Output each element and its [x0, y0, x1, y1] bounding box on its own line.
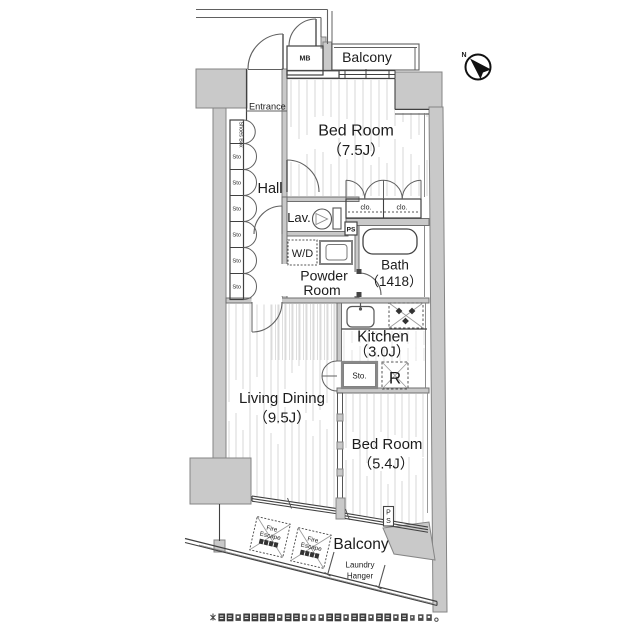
svg-text:Room: Room [303, 282, 340, 298]
svg-text:Balcony: Balcony [342, 49, 392, 65]
svg-text:Sto: Sto [232, 233, 241, 239]
svg-text:Balcony: Balcony [333, 536, 388, 553]
svg-text:Shoes Box: Shoes Box [238, 122, 244, 148]
svg-text:Hall: Hall [258, 181, 283, 197]
svg-text:W/D: W/D [292, 248, 313, 260]
svg-text:Laundry: Laundry [346, 561, 375, 570]
svg-text:Kitchen: Kitchen [357, 329, 409, 346]
svg-text:R: R [389, 369, 401, 388]
svg-text:S: S [386, 518, 391, 525]
svg-text:Hanger: Hanger [347, 572, 374, 581]
svg-text:（7.5J）: （7.5J） [327, 142, 385, 159]
svg-text:Sto.: Sto. [352, 372, 366, 381]
svg-text:MB: MB [300, 56, 311, 63]
svg-text:Sto: Sto [232, 155, 241, 161]
svg-text:Sto: Sto [232, 259, 241, 265]
svg-text:（9.5J）: （9.5J） [253, 410, 311, 427]
svg-text:Bed Room: Bed Room [318, 123, 394, 140]
svg-text:Living Dining: Living Dining [239, 390, 325, 407]
svg-text:（3.0J）: （3.0J） [354, 344, 410, 361]
svg-text:Sto: Sto [232, 207, 241, 213]
svg-text:Lav.: Lav. [287, 210, 311, 225]
svg-text:PS: PS [347, 227, 356, 234]
svg-text:N: N [461, 52, 466, 59]
svg-text:（1418）: （1418） [365, 274, 422, 289]
svg-text:Bath: Bath [381, 258, 409, 273]
svg-text:Sto: Sto [232, 285, 241, 291]
svg-text:P: P [386, 510, 391, 517]
svg-text:Entrance: Entrance [249, 102, 286, 112]
svg-text:Sto: Sto [232, 181, 241, 187]
svg-text:clo.: clo. [397, 205, 408, 212]
svg-text:clo.: clo. [361, 205, 372, 212]
svg-text:Bed Room: Bed Room [352, 436, 423, 453]
svg-text:（5.4J）: （5.4J） [358, 456, 414, 473]
